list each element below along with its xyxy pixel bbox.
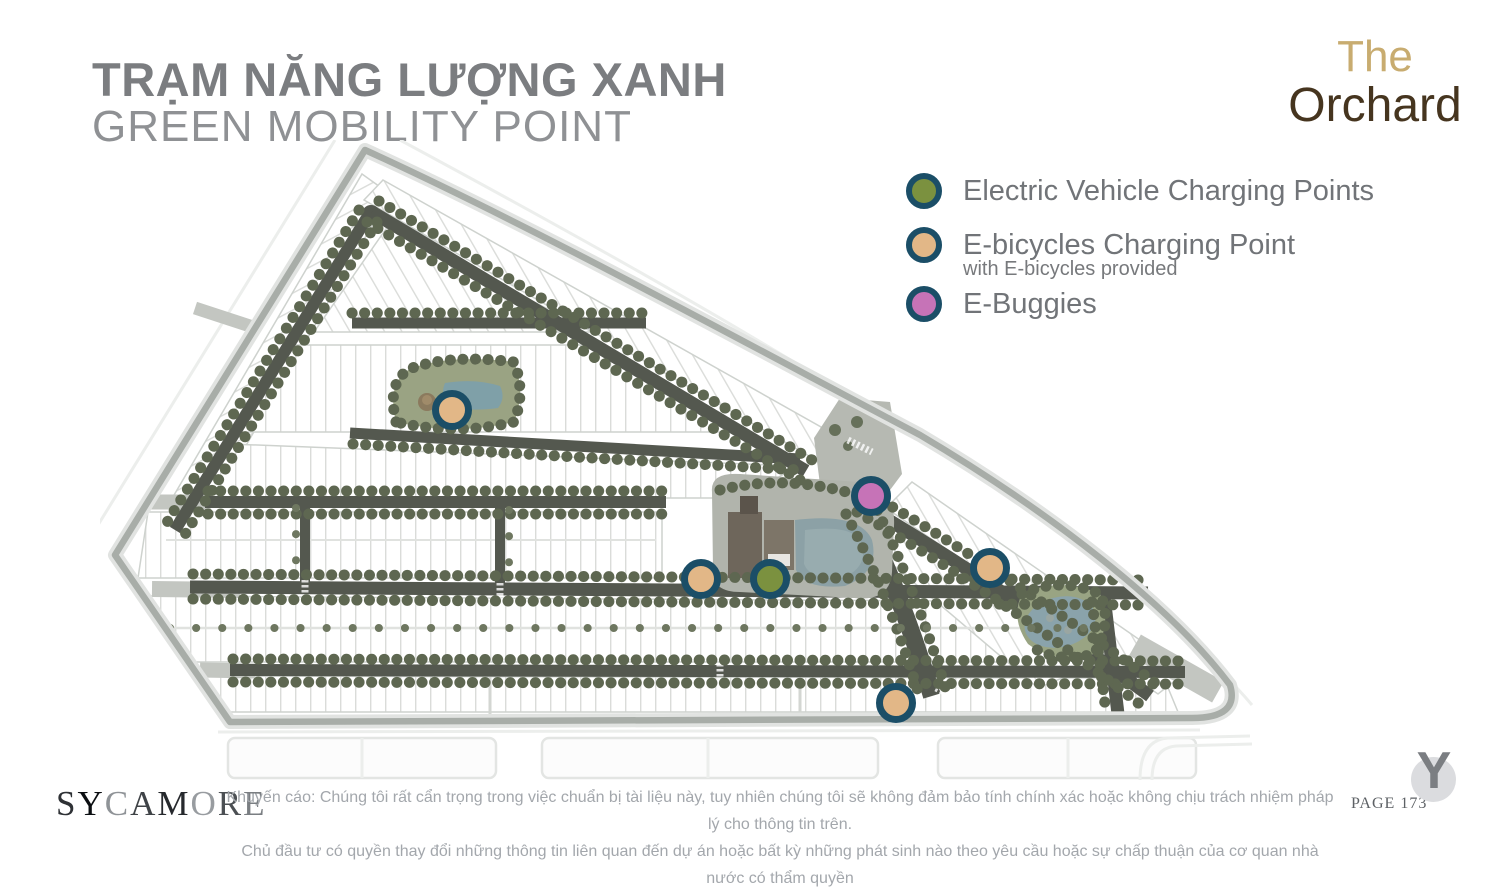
map-marker-ebike	[681, 559, 721, 599]
masterplan-map	[100, 140, 1260, 780]
disclaimer-line-2: Chủ đầu tư có quyền thay đổi những thông…	[225, 838, 1335, 892]
orchard-logo: The Orchard	[1282, 34, 1468, 132]
map-marker-ebuggy	[851, 476, 891, 516]
map-marker-ev	[750, 559, 790, 599]
orchard-logo-the: The	[1282, 34, 1468, 80]
y-mark-glyph: Y	[1408, 745, 1460, 797]
page-title-vietnamese: TRẠM NĂNG LƯỢNG XANH	[92, 52, 727, 107]
sycamore-y-mark: Y	[1408, 752, 1460, 808]
map-marker-ebike	[432, 390, 472, 430]
brochure-page: TRẠM NĂNG LƯỢNG XANH GREEN MOBILITY POIN…	[0, 0, 1500, 844]
disclaimer-text: Khuyến cáo: Chúng tôi rất cẩn trọng tron…	[225, 784, 1335, 892]
map-marker-ebike	[876, 683, 916, 723]
map-marker-layer	[100, 140, 1260, 780]
orchard-logo-name: Orchard	[1282, 81, 1468, 131]
map-marker-ebike	[970, 548, 1010, 588]
disclaimer-line-1: Khuyến cáo: Chúng tôi rất cẩn trọng tron…	[225, 784, 1335, 838]
